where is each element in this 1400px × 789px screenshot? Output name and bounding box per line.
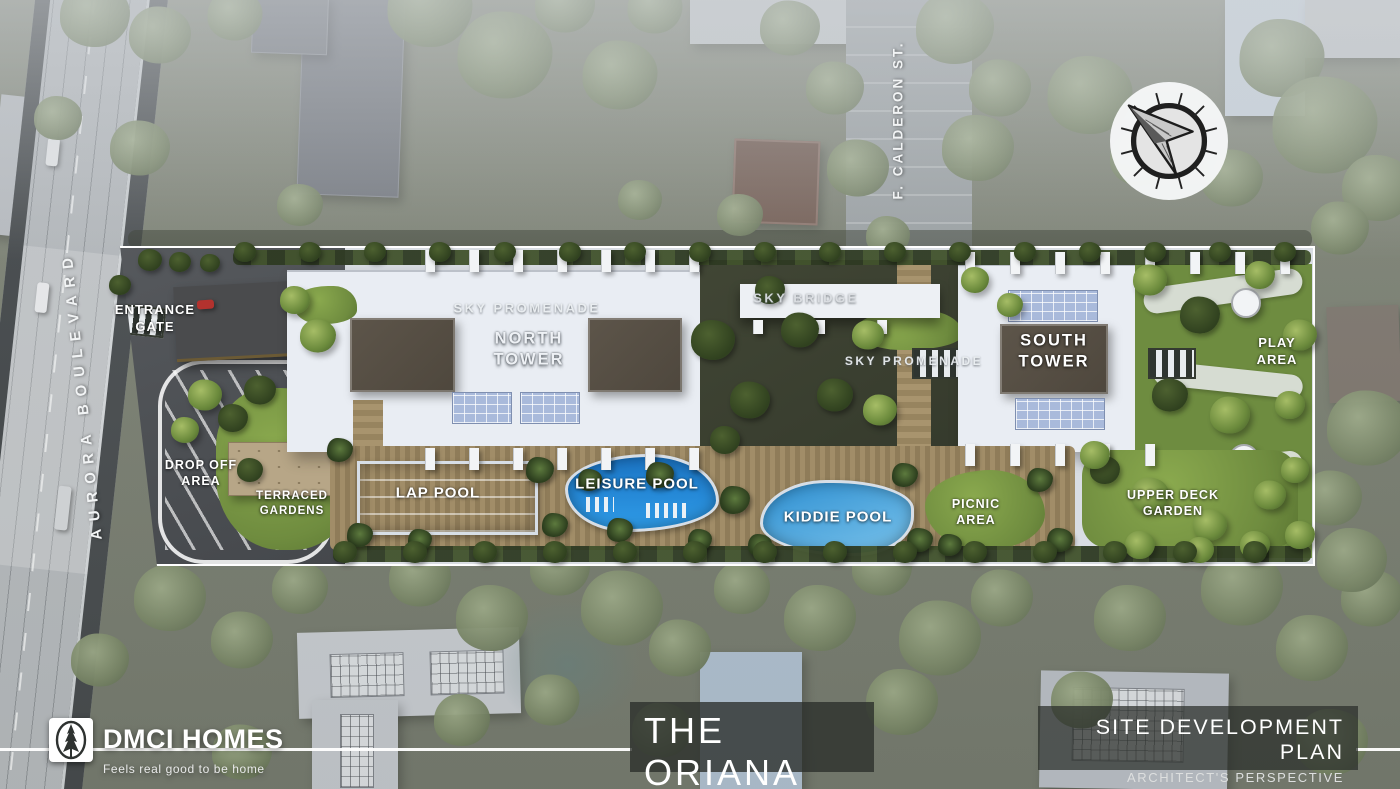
tree bbox=[863, 395, 897, 426]
palm-tree bbox=[892, 463, 918, 487]
palm-tree bbox=[720, 486, 750, 514]
palm-tree bbox=[607, 518, 633, 542]
tree bbox=[689, 242, 711, 262]
tree bbox=[1080, 441, 1110, 469]
palm-tree bbox=[938, 534, 962, 556]
tree bbox=[494, 242, 516, 262]
tree bbox=[817, 379, 853, 412]
tree bbox=[1173, 541, 1197, 563]
tree bbox=[884, 242, 906, 262]
tree bbox=[138, 249, 162, 271]
tree bbox=[559, 242, 581, 262]
palm-tree bbox=[646, 462, 674, 488]
tree bbox=[852, 321, 884, 350]
tree bbox=[691, 320, 735, 360]
tree bbox=[473, 541, 497, 563]
tree bbox=[299, 242, 321, 262]
palm-tree bbox=[542, 513, 568, 537]
tree bbox=[1152, 379, 1188, 412]
tree bbox=[893, 541, 917, 563]
site-trees-layer bbox=[0, 0, 1400, 789]
tree bbox=[961, 267, 989, 293]
brand-tagline: Feels real good to be home bbox=[103, 762, 284, 776]
palm-tree bbox=[578, 469, 602, 491]
tree bbox=[1254, 481, 1286, 510]
tree bbox=[171, 417, 199, 443]
tree bbox=[200, 254, 220, 272]
tree bbox=[997, 293, 1023, 317]
tree bbox=[1283, 320, 1317, 351]
tree bbox=[624, 242, 646, 262]
tree bbox=[730, 382, 770, 419]
brand-name: DMCI HOMES bbox=[103, 724, 284, 755]
tree bbox=[1274, 242, 1296, 262]
tree bbox=[1285, 521, 1315, 549]
tree bbox=[1210, 397, 1250, 434]
tree bbox=[1245, 261, 1275, 289]
tree bbox=[1193, 510, 1227, 541]
tree bbox=[364, 242, 386, 262]
footer-reference-line bbox=[1356, 748, 1400, 751]
tree bbox=[1131, 478, 1169, 513]
tree bbox=[1125, 531, 1155, 559]
dmci-logo-icon bbox=[48, 716, 94, 776]
palm-tree bbox=[526, 457, 554, 483]
tree bbox=[1281, 457, 1309, 483]
tree bbox=[1133, 265, 1167, 296]
tree bbox=[1103, 541, 1127, 563]
tree bbox=[1079, 242, 1101, 262]
tree bbox=[753, 541, 777, 563]
tree bbox=[963, 541, 987, 563]
tree bbox=[1033, 541, 1057, 563]
tree bbox=[683, 541, 707, 563]
palm-tree bbox=[1027, 468, 1053, 492]
tree bbox=[1180, 297, 1220, 334]
tree bbox=[218, 404, 248, 432]
tree bbox=[1209, 242, 1231, 262]
tree bbox=[613, 541, 637, 563]
tree bbox=[755, 276, 785, 304]
tree bbox=[429, 242, 451, 262]
tree bbox=[109, 275, 131, 295]
project-title-box: THE ORIANA AURORA BLVD., QUEZON CITY bbox=[630, 702, 874, 772]
tree bbox=[781, 313, 819, 348]
tree bbox=[754, 242, 776, 262]
tree bbox=[823, 541, 847, 563]
tree bbox=[543, 541, 567, 563]
tree bbox=[819, 242, 841, 262]
plan-title: SITE DEVELOPMENT PLAN bbox=[1052, 715, 1344, 765]
tree bbox=[300, 320, 336, 353]
site-development-plan-rendering: ENTRANCE GATE DROP OFF AREA TERRACED GAR… bbox=[0, 0, 1400, 789]
plan-subtitle: ARCHITECT'S PERSPECTIVE bbox=[1052, 770, 1344, 785]
palm-tree bbox=[327, 438, 353, 462]
tree bbox=[188, 380, 222, 411]
plan-title-box: SITE DEVELOPMENT PLAN ARCHITECT'S PERSPE… bbox=[1038, 706, 1358, 770]
tree bbox=[1144, 242, 1166, 262]
tree bbox=[1275, 391, 1305, 419]
tree bbox=[1243, 541, 1267, 563]
tree bbox=[169, 252, 191, 272]
tree bbox=[1014, 242, 1036, 262]
tree bbox=[403, 541, 427, 563]
project-title: THE ORIANA bbox=[644, 710, 860, 789]
tree bbox=[234, 242, 256, 262]
dmci-homes-logo: DMCI HOMES Feels real good to be home bbox=[48, 716, 284, 776]
tree bbox=[244, 376, 276, 405]
tree bbox=[949, 242, 971, 262]
tree bbox=[710, 426, 740, 454]
tree bbox=[280, 286, 310, 314]
tree bbox=[237, 458, 263, 482]
tree bbox=[333, 541, 357, 563]
